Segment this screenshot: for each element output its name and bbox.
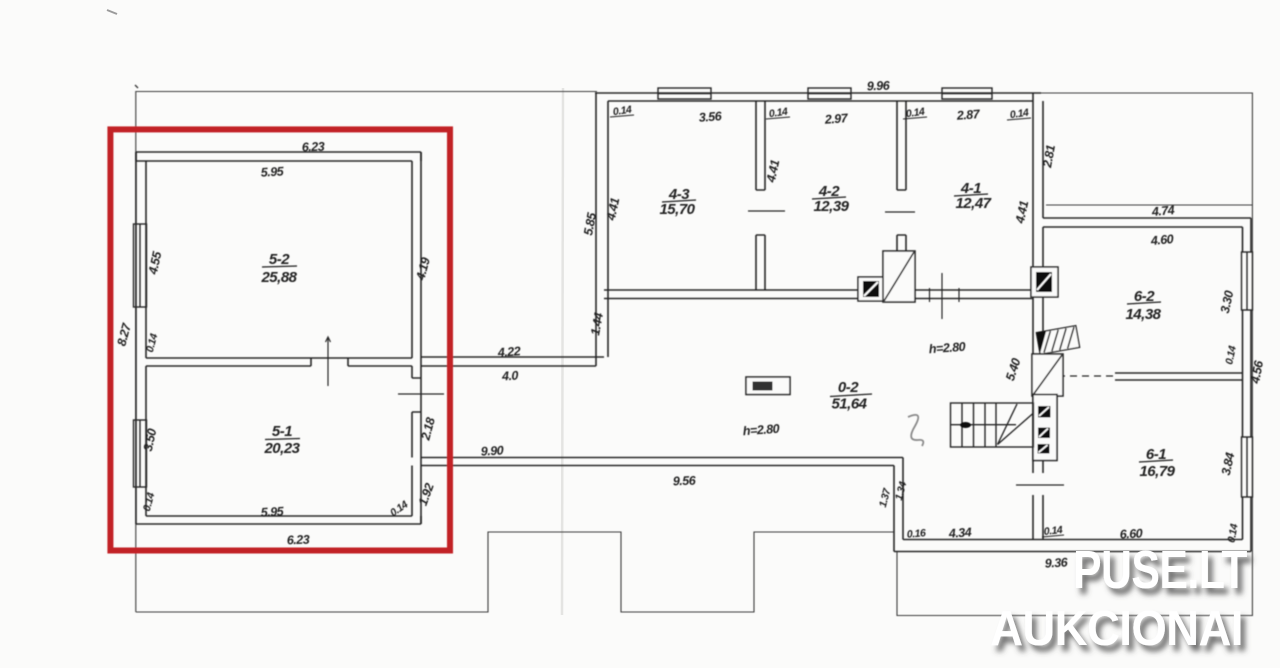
svg-text:5-2: 5-2 [269, 251, 290, 268]
svg-text:51,64: 51,64 [831, 396, 867, 413]
svg-text:9.90: 9.90 [480, 443, 504, 458]
svg-text:5.95: 5.95 [260, 504, 285, 519]
svg-text:12,39: 12,39 [813, 198, 849, 215]
svg-text:4.34: 4.34 [947, 525, 972, 541]
svg-text:14,38: 14,38 [1125, 306, 1161, 323]
svg-text:9.56: 9.56 [673, 474, 697, 489]
svg-text:5-1: 5-1 [272, 423, 292, 440]
svg-text:4.74: 4.74 [1150, 203, 1175, 219]
svg-text:3.56: 3.56 [698, 109, 723, 125]
svg-text:0-2: 0-2 [838, 379, 859, 396]
svg-text:20,23: 20,23 [263, 440, 300, 457]
svg-text:25,88: 25,88 [260, 269, 297, 286]
svg-text:AUKCIONAI: AUKCIONAI [990, 601, 1243, 656]
svg-text:9.36: 9.36 [1044, 555, 1069, 570]
svg-text:5.95: 5.95 [260, 164, 285, 179]
svg-text:6.23: 6.23 [287, 533, 310, 548]
svg-text:2.87: 2.87 [955, 107, 981, 123]
svg-text:2.97: 2.97 [823, 111, 849, 127]
svg-text:h=2.80: h=2.80 [928, 340, 966, 357]
svg-text:9.96: 9.96 [867, 79, 891, 94]
svg-text:4.60: 4.60 [1149, 232, 1174, 248]
svg-text:6.23: 6.23 [302, 140, 325, 155]
svg-text:6.60: 6.60 [1119, 526, 1143, 541]
svg-text:h=2.80: h=2.80 [742, 422, 780, 439]
svg-text:0.16: 0.16 [906, 527, 926, 541]
svg-text:4.0: 4.0 [501, 369, 519, 384]
svg-text:12,47: 12,47 [955, 195, 991, 212]
svg-text:PUSE.LT: PUSE.LT [1073, 540, 1248, 600]
svg-text:16,79: 16,79 [1139, 463, 1175, 480]
svg-text:4.22: 4.22 [496, 344, 521, 360]
svg-text:15,70: 15,70 [659, 201, 695, 218]
